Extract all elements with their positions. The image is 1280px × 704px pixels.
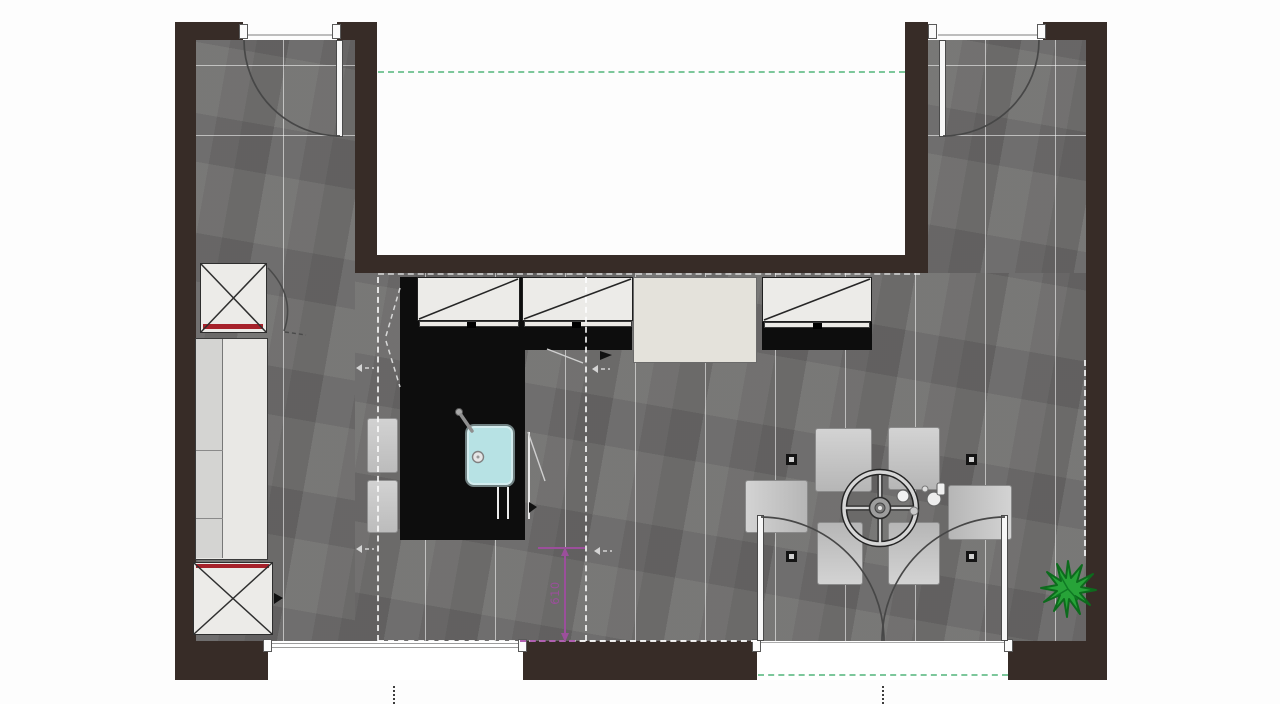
floor-plan-canvas: 610 [0,0,1280,704]
door-swing-arc [943,40,1039,136]
ceiling-guide-dashed [585,277,587,641]
dimension-tick [538,547,585,549]
cabinet-door-line [547,349,583,363]
appliance-door-swing-arc [268,268,288,331]
guide-arrow-glyph [356,364,612,555]
wall-cabinet-diagonal-symbol [419,279,870,320]
dotted-extension-line [882,686,884,704]
guide-line-green [378,71,905,73]
plan-symbols-overlay [0,0,1280,704]
plant-icon [1041,561,1096,617]
magenta-guide-dashed [520,640,575,642]
ceiling-guide-dashed [377,277,379,641]
appliance-door-dash [285,332,306,335]
swing-direction-triangle [274,593,283,604]
guide-line-green [758,674,1008,676]
door-swing-arc [761,517,884,641]
sink-drain [477,456,480,459]
swing-direction-triangle [529,502,537,513]
dotted-extension-line [393,686,395,704]
door-swing-arc [244,40,340,136]
ceiling-guide-dashed [1084,360,1086,556]
round-dining-table-symbol [843,472,917,544]
ceiling-guide-dashed [378,273,920,275]
swing-direction-triangle [600,351,612,360]
dimension-line [564,548,566,641]
dimension-label: 610 [548,578,562,608]
appliance-x-symbol [194,264,272,634]
open-door-dash-symbol [386,288,400,387]
cabinet-door-line [528,432,545,481]
faucet-icon [461,415,472,431]
